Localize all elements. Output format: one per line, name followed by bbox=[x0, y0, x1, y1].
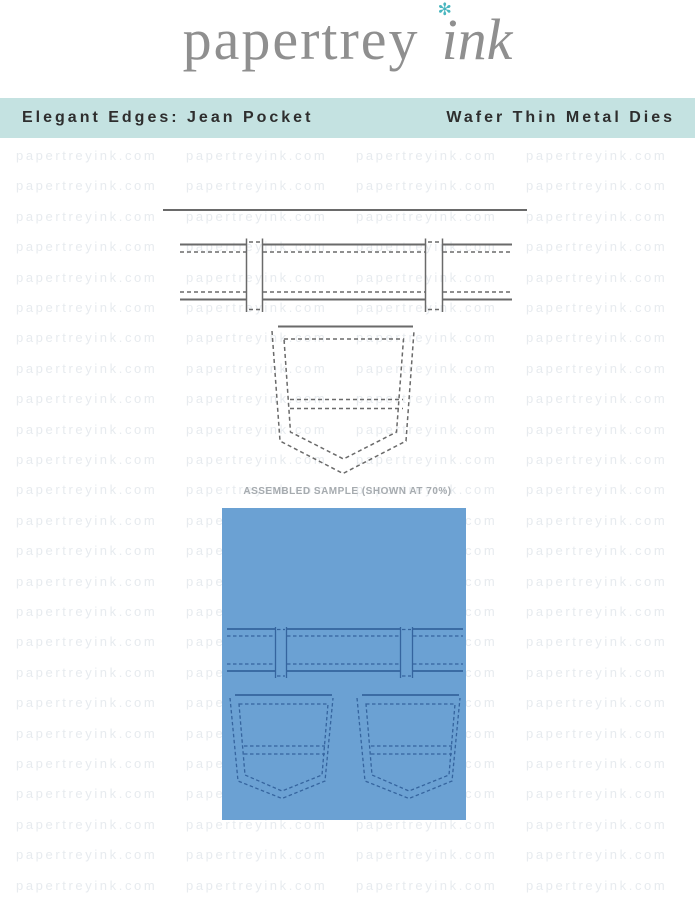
card-pocket-right-outer bbox=[357, 698, 460, 799]
card-pocket-left-mid-stitch bbox=[244, 746, 325, 754]
flower-icon: ✻ bbox=[438, 2, 452, 19]
sample-caption: ASSEMBLED SAMPLE (SHOWN AT 70%) bbox=[0, 486, 695, 497]
card-pocket-left-inner bbox=[239, 704, 328, 791]
belt-loop-left bbox=[247, 239, 263, 313]
title-banner: Elegant Edges: Jean Pocket Wafer Thin Me… bbox=[0, 98, 695, 138]
pocket-outer-outline bbox=[272, 331, 414, 474]
logo-suffix-text: ✻ink bbox=[438, 8, 513, 72]
belt-loop-right-ticks bbox=[428, 242, 440, 310]
card-pocket-right-mid-stitch bbox=[371, 746, 452, 754]
card-waistband bbox=[227, 627, 463, 678]
pocket-mid-stitch-lines bbox=[290, 400, 403, 409]
brand-logo: papertrey ✻ink bbox=[0, 8, 695, 72]
pocket-die bbox=[272, 327, 414, 474]
product-category: Wafer Thin Metal Dies bbox=[446, 109, 675, 127]
belt-loop-left-ticks bbox=[249, 242, 260, 310]
product-title: Elegant Edges: Jean Pocket bbox=[22, 109, 313, 127]
assembled-sample-card bbox=[222, 508, 466, 820]
product-sheet: papertreyink.compapertreyink.compapertre… bbox=[0, 0, 695, 900]
card-pocket-right bbox=[357, 695, 460, 799]
pocket-inner-stitch-outline bbox=[284, 339, 404, 459]
belt-loop-right bbox=[426, 239, 443, 313]
logo-brand-text: papertrey bbox=[183, 8, 420, 72]
card-pocket-left bbox=[230, 695, 333, 799]
card-pocket-left-outer bbox=[230, 698, 333, 799]
logo-suffix-word: ink bbox=[442, 7, 513, 72]
waistband-die bbox=[180, 239, 512, 313]
sample-card-stitching bbox=[222, 508, 466, 820]
card-pocket-right-inner bbox=[366, 704, 455, 791]
